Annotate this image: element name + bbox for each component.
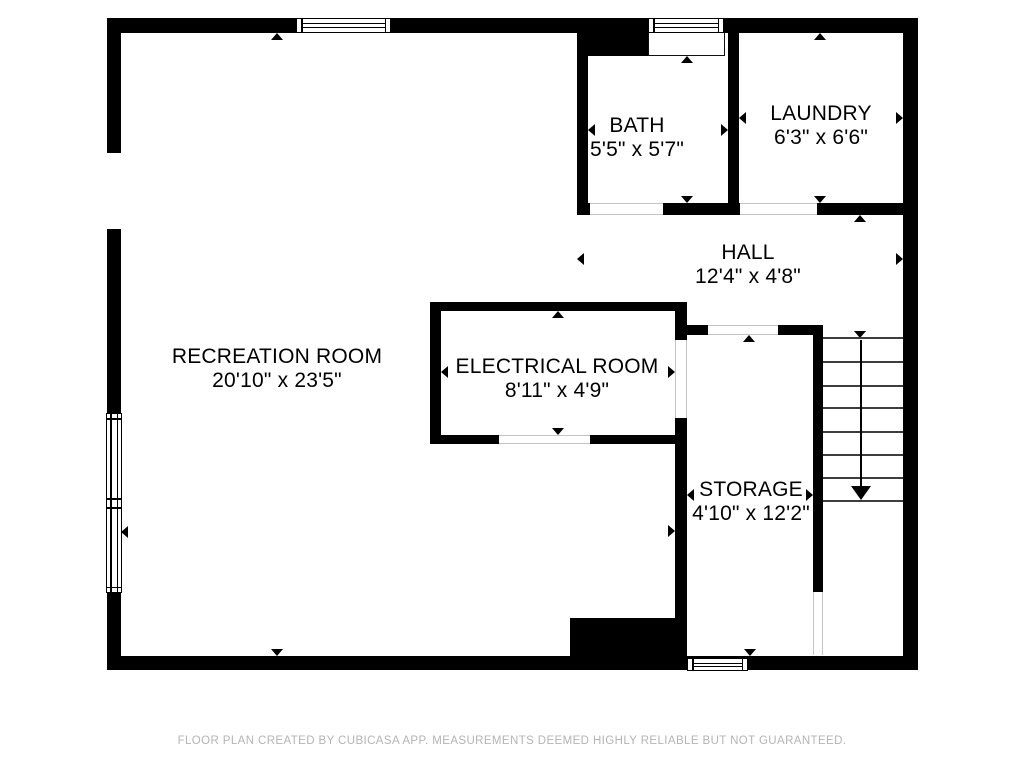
stairs-start-tick	[856, 331, 866, 336]
measure-arrow-down	[814, 196, 826, 203]
stair-tread	[823, 454, 903, 456]
wall	[663, 203, 740, 215]
measure-arrow-down	[744, 649, 756, 656]
window	[648, 18, 724, 33]
room-name: BATH	[590, 114, 684, 138]
room-label-bath: BATH5'5" x 5'7"	[590, 114, 684, 162]
wall	[687, 325, 708, 335]
door-opening	[499, 435, 590, 444]
window-frame-line	[107, 418, 121, 420]
window-frame-line	[653, 19, 655, 32]
room-name: ELECTRICAL ROOM	[456, 355, 659, 379]
room-dims: 12'4" x 4'8"	[695, 265, 801, 289]
room-name: STORAGE	[692, 478, 810, 502]
wall	[675, 418, 687, 618]
window	[296, 18, 391, 33]
measure-arrow-up	[271, 33, 283, 40]
wall	[107, 18, 918, 33]
window-frame-line	[302, 27, 385, 28]
window-frame-line	[692, 659, 694, 670]
door-opening	[590, 203, 663, 215]
measure-arrow-right	[896, 253, 903, 265]
floor-plan-page: RECREATION ROOM20'10" x 23'5"BATH5'5" x …	[0, 0, 1024, 768]
door-opening	[740, 203, 817, 215]
window	[687, 658, 748, 671]
room-dims: 8'11" x 4'9"	[456, 379, 659, 403]
window-frame-line	[117, 414, 118, 592]
measure-arrow-right	[668, 525, 675, 537]
measure-arrow-up	[552, 311, 564, 318]
wall	[430, 302, 441, 444]
stair-tread	[823, 361, 903, 363]
window-frame-line	[654, 27, 718, 28]
measure-arrow-up	[681, 56, 693, 63]
wall	[903, 18, 918, 670]
room-dims: 4'10" x 12'2"	[692, 502, 810, 526]
window-frame-line	[107, 587, 121, 589]
stairs-direction-line	[860, 340, 862, 488]
stair-tread	[823, 431, 903, 433]
measure-arrow-left	[577, 253, 584, 265]
stair-tread	[823, 385, 903, 387]
window-frame-line	[301, 19, 303, 32]
room-name: HALL	[695, 241, 801, 265]
wall	[813, 325, 823, 592]
stairs-arrowhead	[851, 486, 871, 500]
room-label-storage: STORAGE4'10" x 12'2"	[692, 478, 810, 526]
room-dims: 20'10" x 23'5"	[172, 369, 382, 393]
measure-arrow-right	[721, 124, 728, 136]
measure-arrow-right	[896, 112, 903, 124]
door-opening	[708, 325, 778, 335]
window-frame-line	[693, 666, 742, 667]
wall	[588, 33, 648, 56]
room-name: LAUNDRY	[770, 102, 871, 126]
room-label-laundry: LAUNDRY6'3" x 6'6"	[770, 102, 871, 150]
measure-arrow-up	[743, 335, 755, 342]
measure-arrow-up	[854, 215, 866, 222]
door-opening	[675, 340, 687, 418]
window-frame-line	[654, 23, 718, 24]
measure-arrow-left	[441, 366, 448, 378]
room-label-electrical-room: ELECTRICAL ROOM8'11" x 4'9"	[456, 355, 659, 403]
window-frame-line	[110, 414, 111, 592]
window-frame-line	[107, 498, 121, 500]
wall	[728, 33, 739, 215]
window-frame-line	[107, 507, 121, 509]
window-frame-line	[385, 19, 387, 32]
wall	[577, 203, 590, 215]
measure-arrow-right	[668, 366, 675, 378]
room-label-hall: HALL12'4" x 4'8"	[695, 241, 801, 289]
stair-tread	[823, 337, 903, 339]
room-label-recreation-room: RECREATION ROOM20'10" x 23'5"	[172, 345, 382, 393]
bay-window-recess	[648, 33, 725, 56]
wall	[577, 33, 588, 215]
window-frame-line	[302, 23, 385, 24]
measure-arrow-left	[739, 112, 746, 124]
stair-tread	[823, 407, 903, 409]
measure-arrow-up	[814, 33, 826, 40]
window-frame-line	[718, 19, 720, 32]
floor-plan: RECREATION ROOM20'10" x 23'5"BATH5'5" x …	[0, 0, 1024, 768]
stair-tread	[823, 477, 903, 479]
wall	[430, 302, 685, 311]
room-dims: 5'5" x 5'7"	[590, 138, 684, 162]
measure-arrow-left	[121, 526, 128, 538]
wall-opening	[107, 153, 121, 229]
window	[106, 413, 122, 593]
wall	[107, 656, 918, 670]
wall	[778, 325, 813, 335]
wall	[817, 203, 915, 215]
window-frame-line	[693, 663, 742, 664]
room-name: RECREATION ROOM	[172, 345, 382, 369]
footer-disclaimer: FLOOR PLAN CREATED BY CUBICASA APP. MEAS…	[0, 735, 1024, 747]
stair-tread	[823, 500, 903, 502]
room-dims: 6'3" x 6'6"	[770, 126, 871, 150]
measure-arrow-down	[271, 649, 283, 656]
wall	[675, 302, 687, 342]
measure-arrow-down	[552, 428, 564, 435]
window-frame-line	[742, 659, 744, 670]
door-opening	[813, 592, 823, 655]
measure-arrow-down	[681, 196, 693, 203]
wall	[570, 618, 687, 658]
